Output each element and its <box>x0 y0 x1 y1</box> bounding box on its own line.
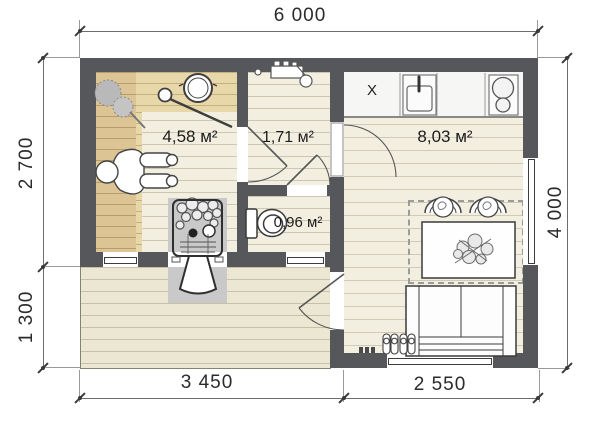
chair-icon <box>470 197 506 217</box>
dimension-label-bottom-right: 2 550 <box>385 374 495 396</box>
slippers-icon <box>383 334 415 354</box>
extension-line <box>43 367 80 368</box>
dimension-line-right <box>567 58 568 368</box>
dimension-dot <box>41 265 45 269</box>
chair-icon <box>425 197 461 217</box>
venik-icon <box>95 80 145 128</box>
dimension-line-left <box>43 58 44 368</box>
sofa <box>406 286 516 356</box>
sink-icon <box>403 75 436 115</box>
door-swing-wc-icon <box>287 155 330 185</box>
dimension-dot <box>78 396 82 400</box>
shower-icon <box>255 61 312 87</box>
extension-line <box>79 20 80 58</box>
dimension-label-bottom-left: 3 450 <box>152 372 262 394</box>
dimension-dot <box>41 366 45 370</box>
person-icon <box>96 149 178 194</box>
dimension-dot <box>565 366 569 370</box>
door-swing-entrance-icon <box>299 274 344 330</box>
dimension-line-top <box>80 31 538 32</box>
extension-line <box>537 20 538 58</box>
room-area-label-washroom: 1,71 м² <box>238 129 338 147</box>
fridge-label: X <box>357 82 387 104</box>
furniture-layer <box>0 0 600 424</box>
room-area-label-lounge: 8,03 м² <box>395 127 495 147</box>
tub-icon <box>179 74 217 102</box>
dimension-dot <box>41 56 45 60</box>
room-area-label-sauna: 4,58 м² <box>140 127 240 147</box>
door-swing-lounge-icon <box>331 123 396 177</box>
dining-table <box>422 222 515 278</box>
floor-plan: 4,58 м² 1,71 м² 0,96 м² 8,03 м² X 6 000 … <box>0 0 600 424</box>
dimension-label-left-upper: 2 700 <box>16 108 38 218</box>
dimension-label-left-lower: 1 300 <box>16 262 38 372</box>
extension-line <box>43 266 80 267</box>
dimension-label-right: 4 000 <box>545 157 567 267</box>
stove-icon <box>172 198 223 294</box>
dimension-label-top: 6 000 <box>245 5 355 27</box>
dimension-dot <box>565 56 569 60</box>
dimension-dot <box>342 396 346 400</box>
dimension-dot <box>536 396 540 400</box>
shoes-icon <box>359 347 375 353</box>
dimension-dot <box>536 29 540 33</box>
dimension-line-bottom <box>80 398 538 399</box>
extension-line <box>43 57 80 58</box>
dimension-dot <box>78 29 82 33</box>
cooktop-icon <box>489 75 518 115</box>
room-area-label-wc: 0,96 м² <box>248 214 348 231</box>
